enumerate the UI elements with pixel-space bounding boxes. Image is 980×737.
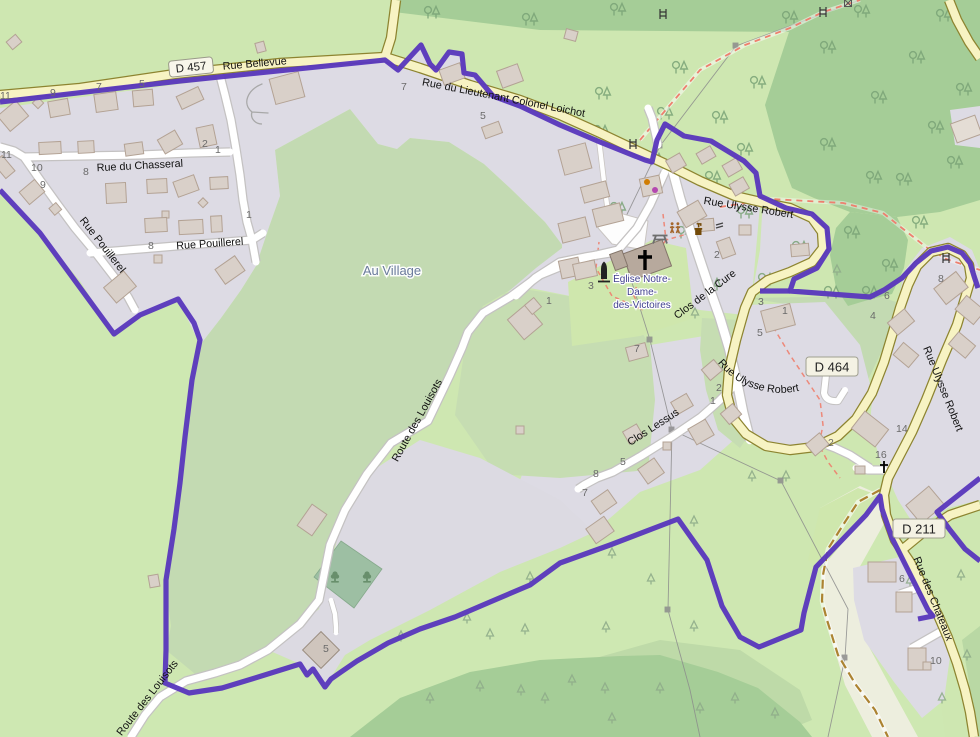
svg-text:des-Victoires: des-Victoires xyxy=(613,300,671,311)
svg-text:14: 14 xyxy=(896,423,908,435)
svg-text:4: 4 xyxy=(870,310,876,322)
svg-text:5: 5 xyxy=(620,456,626,468)
svg-text:3: 3 xyxy=(588,280,594,292)
svg-text:1: 1 xyxy=(710,395,716,407)
svg-text:1: 1 xyxy=(546,295,552,307)
svg-text:7: 7 xyxy=(401,81,407,93)
svg-text:10: 10 xyxy=(31,162,43,174)
svg-text:11: 11 xyxy=(1,149,12,161)
svg-text:7: 7 xyxy=(634,343,640,355)
svg-text:6: 6 xyxy=(899,573,905,585)
svg-text:2: 2 xyxy=(716,382,722,394)
svg-text:8: 8 xyxy=(938,273,944,285)
svg-text:16: 16 xyxy=(875,449,887,461)
svg-text:10: 10 xyxy=(930,655,942,667)
svg-text:Dame-: Dame- xyxy=(627,287,657,298)
svg-text:3: 3 xyxy=(758,296,764,308)
svg-text:Église Notre-: Église Notre- xyxy=(613,272,671,285)
svg-text:7: 7 xyxy=(582,487,588,499)
svg-text:7: 7 xyxy=(96,81,102,93)
svg-text:9: 9 xyxy=(40,179,46,191)
svg-text:2: 2 xyxy=(828,437,834,449)
svg-text:8: 8 xyxy=(148,240,154,252)
svg-text:5: 5 xyxy=(139,78,145,90)
svg-text:Au Village: Au Village xyxy=(363,263,421,278)
svg-text:5: 5 xyxy=(323,643,329,655)
svg-text:8: 8 xyxy=(83,166,89,178)
svg-text:9: 9 xyxy=(50,87,56,99)
svg-text:11: 11 xyxy=(0,90,11,102)
svg-text:8: 8 xyxy=(593,468,599,480)
svg-text:2: 2 xyxy=(202,138,208,150)
svg-text:5: 5 xyxy=(480,110,486,122)
svg-text:2: 2 xyxy=(714,249,720,261)
svg-text:1: 1 xyxy=(246,209,252,221)
svg-text:1: 1 xyxy=(782,305,788,317)
svg-text:6: 6 xyxy=(884,290,890,302)
svg-text:1: 1 xyxy=(215,144,221,156)
svg-text:D 211: D 211 xyxy=(902,522,936,537)
svg-text:5: 5 xyxy=(757,327,763,339)
svg-text:D 464: D 464 xyxy=(815,360,850,375)
